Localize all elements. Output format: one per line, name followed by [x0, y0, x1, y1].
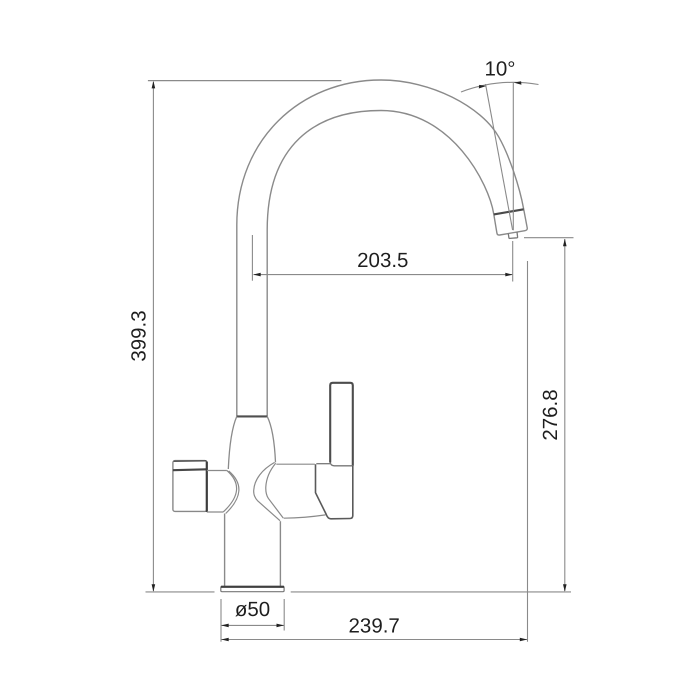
svg-text:10°: 10°	[484, 58, 515, 81]
svg-text:ø50: ø50	[235, 598, 270, 621]
svg-text:276.8: 276.8	[539, 389, 562, 440]
svg-text:239.7: 239.7	[349, 614, 400, 637]
svg-text:399.3: 399.3	[127, 310, 150, 361]
svg-text:203.5: 203.5	[357, 249, 408, 272]
